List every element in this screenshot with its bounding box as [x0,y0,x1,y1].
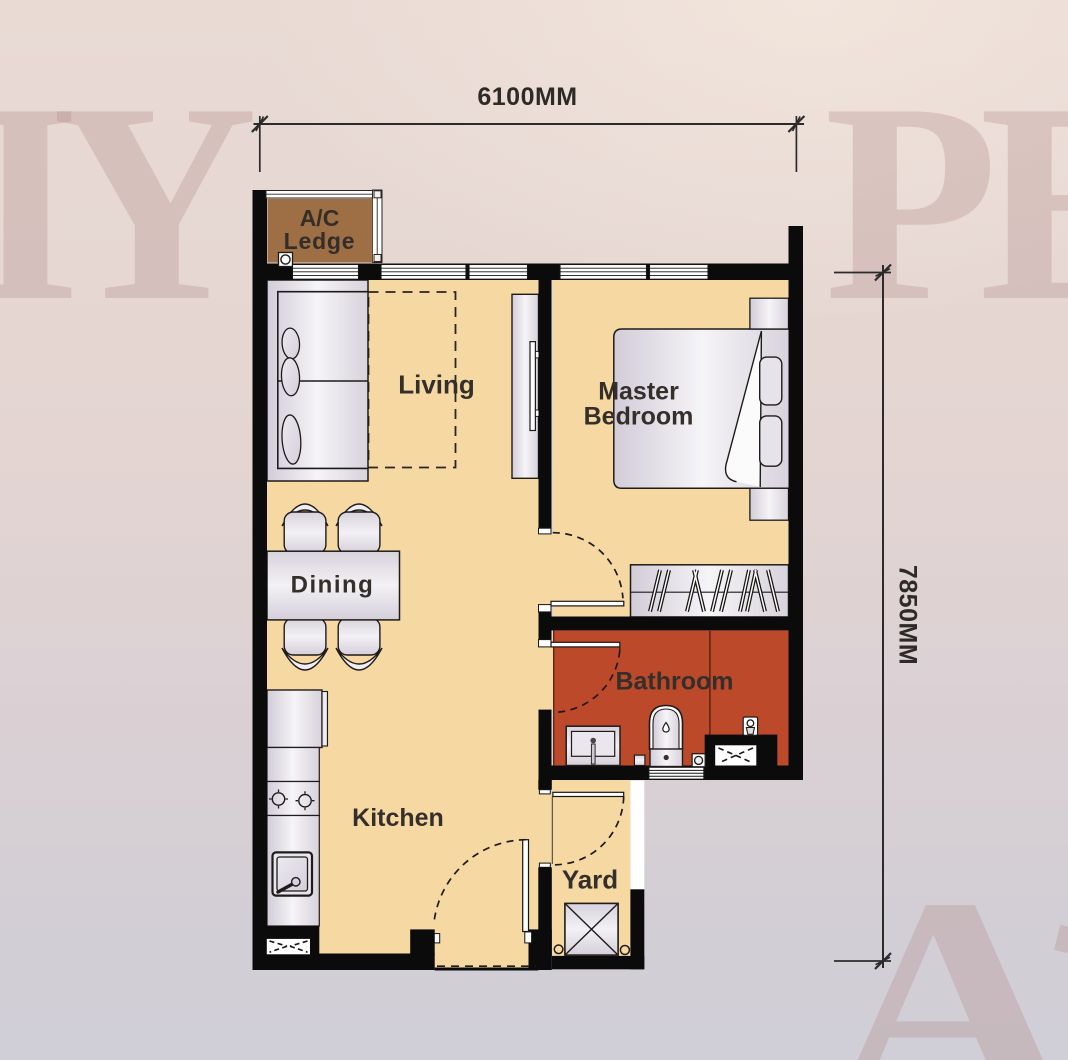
svg-text:Master: Master [598,378,679,406]
svg-text:Yard: Yard [562,865,618,895]
svg-text:6100MM: 6100MM [477,83,577,111]
svg-text:Bathroom: Bathroom [615,668,733,696]
svg-text:Ledge: Ledge [284,228,356,254]
svg-text:A: A [825,836,1068,1060]
svg-text:Kitchen: Kitchen [352,804,444,832]
svg-text:Dining: Dining [291,572,375,599]
svg-text:Bedroom: Bedroom [584,403,694,431]
svg-text:E: E [979,44,1068,360]
svg-text:Y: Y [52,44,258,360]
svg-text:P: P [824,44,998,360]
svg-text:Living: Living [398,370,475,400]
svg-text:7850MM: 7850MM [894,565,922,665]
